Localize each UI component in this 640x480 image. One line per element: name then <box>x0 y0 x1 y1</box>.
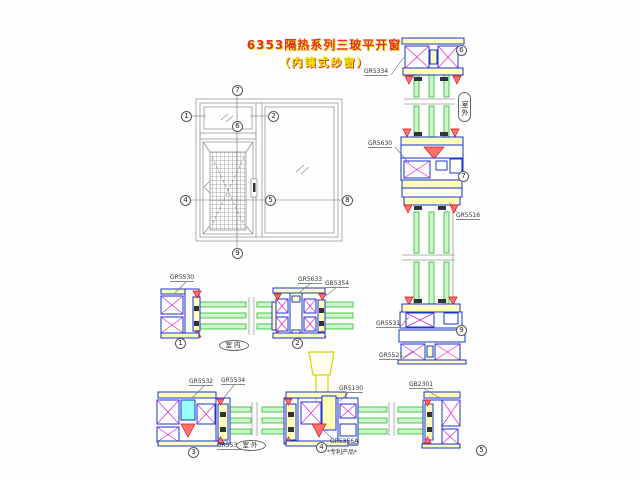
drawing-title-line1: 6353隔热系列三玻平开窗 <box>238 36 410 53</box>
fixed-jamb-detail-5 <box>422 392 460 448</box>
label-gr5532: GR5532 <box>189 378 213 386</box>
callout-elevation-5: 5 <box>265 195 276 206</box>
cyan-chamber <box>181 400 195 420</box>
callout-elevation-4: 4 <box>180 195 191 206</box>
label-gr5130: GR5130 <box>339 385 363 393</box>
glass-symbol-fixed-pane <box>296 165 309 174</box>
label-gr5356a: GR5356A <box>330 438 358 446</box>
cad-drawing-canvas: 6353隔热系列三玻平开窗 （内镶式纱窗） 7 1 2 6 4 5 8 9 6 … <box>0 0 640 480</box>
callout-elevation-8: 8 <box>342 195 353 206</box>
callout-section-6: 6 <box>456 45 467 56</box>
outdoor-tag-row2: 室外 <box>236 440 266 451</box>
jamb-detail-1 <box>161 289 201 338</box>
horizontal-section-row1 <box>161 288 353 338</box>
outdoor-vertical-tag: 室外 <box>458 92 471 122</box>
label-gr5630: GR5630 <box>368 140 392 148</box>
label-gr5534: GR5534 <box>221 377 245 385</box>
break-lines-row1 <box>249 297 254 335</box>
glass-symbol-transom <box>221 114 233 122</box>
sash-meeting-detail-4 <box>284 352 358 446</box>
callout-row2-4: 4 <box>316 442 327 453</box>
label-gr5530: GR5530 <box>170 274 194 282</box>
label-gr5521: GR5521 <box>379 352 403 360</box>
label-gr5633: GR5633 <box>298 276 322 284</box>
callout-elevation-7: 7 <box>232 85 243 96</box>
callout-row1-2: 2 <box>292 338 303 349</box>
label-patent-product: *专利产品* <box>327 449 357 456</box>
cad-geometry <box>0 0 640 480</box>
mullion-detail-2 <box>272 288 326 338</box>
label-gb5354: GB5354 <box>325 280 349 288</box>
label-gr5516: GR5516 <box>456 212 480 220</box>
transom-section-profile <box>401 129 463 213</box>
callout-elevation-6: 6 <box>232 121 243 132</box>
callout-elevation-9: 9 <box>232 248 243 259</box>
callout-row2-5: 5 <box>476 445 487 456</box>
hinge-marker <box>204 181 210 193</box>
label-gr5334: GR5334 <box>364 68 388 76</box>
label-gb2301: GB2301 <box>409 381 433 389</box>
callout-elevation-1: 1 <box>181 111 192 122</box>
callout-row2-3: 3 <box>188 447 199 458</box>
horizontal-section-row2 <box>157 352 460 448</box>
handle-profile <box>309 352 334 375</box>
callout-row1-1: 1 <box>175 338 186 349</box>
indoor-tag-row1: 室内 <box>219 340 249 351</box>
callout-section-7: 7 <box>458 171 469 182</box>
vertical-section <box>398 38 466 364</box>
callout-elevation-2: 2 <box>268 111 279 122</box>
callout-section-9: 9 <box>456 325 467 336</box>
label-gr5531: GR5531 <box>376 320 400 328</box>
